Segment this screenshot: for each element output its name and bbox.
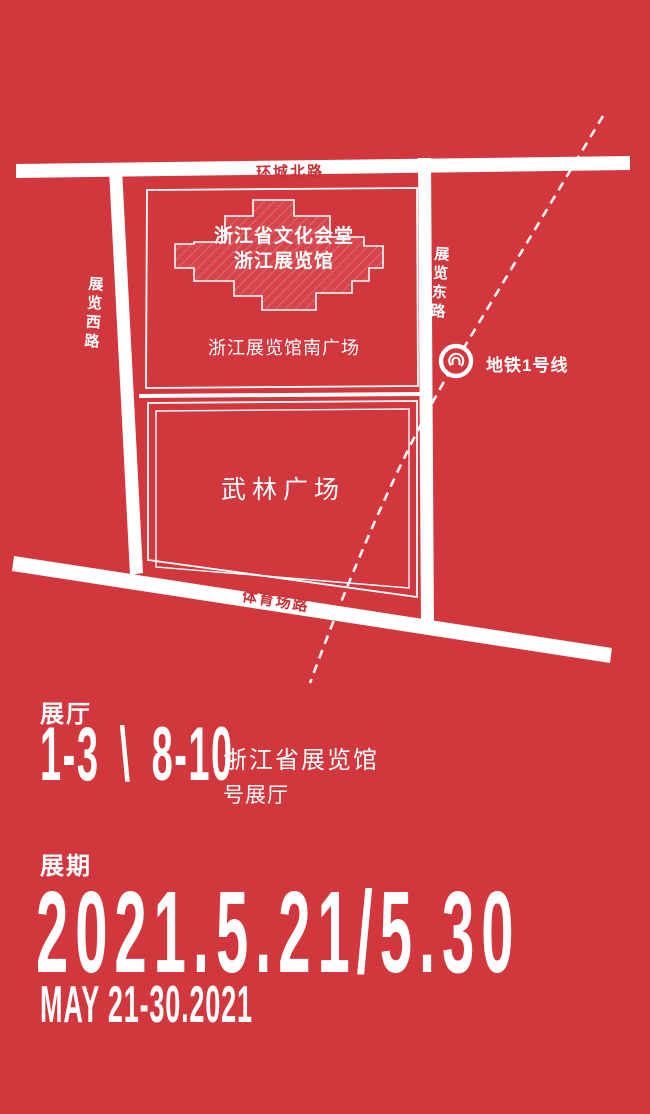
metro-station-icon — [441, 346, 471, 376]
hall-range-1: 1-3 — [40, 712, 99, 797]
venue-name-line1: 浙江省展览馆 — [223, 740, 379, 775]
venue-name-line2: 号展厅 — [223, 779, 379, 809]
road-zhanlan-east — [418, 158, 434, 626]
road-label-huancheng-north: 环城北路 — [256, 160, 324, 182]
metro-line-1-path — [310, 116, 603, 683]
exhibition-dates-english: MAY 21-30.2021 — [40, 979, 253, 1031]
road-zhanlan-west — [109, 169, 143, 575]
wulin-square-label: 武林广场 — [168, 470, 398, 506]
hall-range-separator: \ — [119, 712, 131, 797]
block-divider-line — [139, 394, 424, 396]
hall-range-2: 8-10 — [152, 712, 234, 797]
metro-line-label: 地铁1号线 — [486, 351, 568, 376]
building-label-line2: 浙江展览馆 — [176, 249, 392, 274]
venue-name: 浙江省展览馆 号展厅 — [223, 740, 379, 809]
building-label-line1: 浙江省文化会堂 — [176, 224, 392, 249]
road-tiyuchang — [12, 556, 612, 663]
exhibition-dates: 2021.5.21/5.30 — [36, 874, 520, 990]
exhibition-location-poster: 环城北路 展览西路 展览东路 体育场路 浙江省文化会堂 浙江展览馆 浙江展览馆南… — [0, 0, 650, 1114]
hall-number-ranges: 1-3\8-10 — [40, 717, 234, 793]
building-label: 浙江省文化会堂 浙江展览馆 — [176, 224, 392, 274]
south-square-label: 浙江展览馆南广场 — [176, 334, 392, 360]
